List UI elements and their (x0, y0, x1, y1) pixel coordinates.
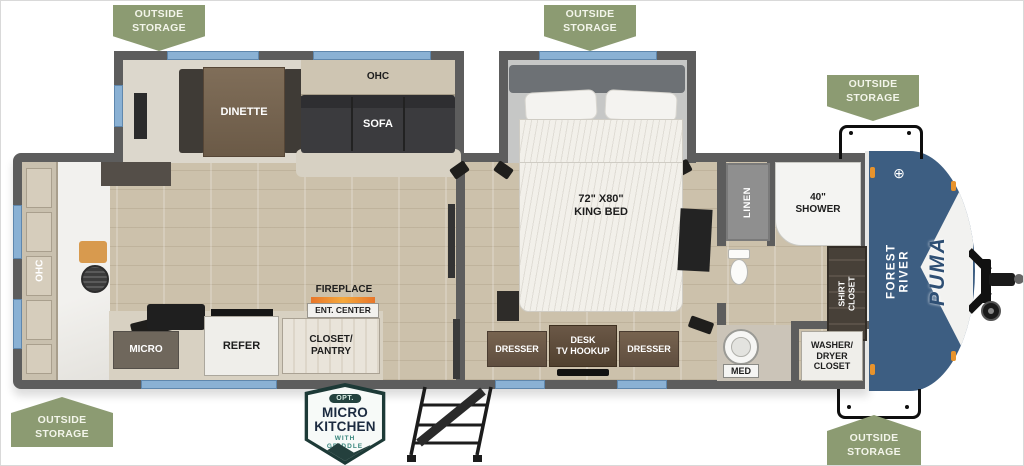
bedroom-tv (677, 208, 712, 272)
cabinet-door (26, 168, 52, 208)
shower-label: 40" SHOWER (775, 162, 861, 246)
compartment-latch (907, 131, 911, 135)
fireplace-label: FIREPLACE (303, 284, 385, 296)
headboard (509, 65, 685, 93)
bath-wall-upper (717, 162, 726, 246)
cabinet-door (26, 300, 52, 340)
cabinet-door (26, 344, 52, 374)
sofa-cushion-divider (403, 97, 405, 151)
shirt-closet: SHIRT CLOSET (827, 246, 867, 341)
closet-pantry-label: CLOSET/ PANTRY (282, 318, 380, 374)
entry-door-panel (453, 319, 460, 379)
pillow-right (604, 89, 677, 123)
king-bed-upper (519, 119, 683, 163)
entry-steps-icon (405, 385, 497, 465)
desk-tv-hookup-label: DESK TV HOOKUP (549, 325, 617, 367)
option-badge-title: MICRO KITCHEN (301, 406, 389, 434)
sofa-cushion-divider (351, 97, 353, 151)
window (495, 380, 545, 389)
marker-light (870, 167, 875, 178)
sofa-label: SOFA (301, 95, 455, 153)
dresser-right-label: DRESSER (619, 331, 679, 367)
bath-sink-bowl (731, 337, 751, 357)
compartment-latch (905, 405, 909, 409)
micro-kitchen-option-badge: OPT. MICRO KITCHEN WITH GRIDDLE (297, 383, 393, 465)
med-label: MED (723, 364, 759, 378)
window (114, 85, 123, 127)
window (539, 51, 657, 60)
outside-storage-badge-top-left: OUTSIDE STORAGE (113, 5, 205, 51)
tv-hookup-bar (557, 369, 609, 376)
marker-light (951, 181, 956, 191)
refer-label: REFER (204, 316, 279, 376)
shirt-closet-label: SHIRT CLOSET (837, 276, 857, 310)
king-bed (519, 162, 683, 312)
outside-storage-badge-bottom-left: OUTSIDE STORAGE (11, 397, 113, 447)
compartment-latch (847, 405, 851, 409)
option-badge-inner: OPT. MICRO KITCHEN WITH GRIDDLE (301, 387, 389, 461)
upper-cabinet (101, 162, 171, 186)
brand-forest-river: FOREST RIVER (886, 243, 912, 299)
window (313, 51, 431, 60)
outside-storage-badge-top-center: OUTSIDE STORAGE (544, 5, 636, 51)
king-bed-label: 72" X80" KING BED (537, 189, 665, 223)
marker-light (870, 364, 875, 375)
hitch-icon (969, 239, 1024, 323)
option-badge-tag: OPT. (329, 394, 361, 403)
toilet-bowl (730, 259, 748, 285)
sofa-rug (296, 149, 461, 177)
front-cap: FOREST RIVER ⊕ PUMA (865, 151, 975, 391)
cutting-board (79, 241, 107, 263)
rear-ohc-label: OHC (34, 260, 46, 282)
micro-label: MICRO (113, 331, 179, 369)
window (13, 205, 22, 259)
ent-center-label: ENT. CENTER (307, 303, 379, 318)
dresser-left-label: DRESSER (487, 331, 547, 367)
linen-cabinet: LINEN (726, 163, 770, 241)
window (141, 380, 277, 389)
dinette-bench-left (179, 69, 205, 153)
washer-dryer-label: WASHER/ DRYER CLOSET (801, 331, 863, 381)
linen-label: LINEN (743, 186, 754, 217)
bedroom-pocket-door (448, 204, 455, 278)
pillow-left (524, 89, 597, 123)
compartment-latch (849, 131, 853, 135)
outside-storage-badge-bottom-right: OUTSIDE STORAGE (827, 415, 921, 465)
toilet-tank (728, 249, 750, 259)
living-tv (134, 93, 147, 139)
storage-compartment-outline-bottom (837, 389, 921, 419)
cooktop-griddle (147, 304, 205, 330)
window (617, 380, 667, 389)
outside-storage-badge-right: OUTSIDE STORAGE (827, 75, 919, 121)
sofa-ohc-label: OHC (301, 60, 455, 96)
nightstand (497, 291, 519, 321)
brand-puma: PUMA (926, 236, 950, 306)
floorplan: OUTSIDE STORAGE OUTSIDE STORAGE OUTSIDE … (0, 0, 1024, 466)
dinette-table: DINETTE (203, 67, 285, 157)
brand-puma-wrap: PUMA (921, 181, 955, 361)
washer-wall-side (791, 327, 799, 389)
window (13, 299, 22, 349)
brand-forest-river-wrap: FOREST RIVER (885, 161, 913, 381)
kitchen-sink (81, 265, 109, 293)
window (167, 51, 259, 60)
marker-light (951, 351, 956, 361)
rear-ohc-label-wrap: OHC (22, 241, 58, 301)
